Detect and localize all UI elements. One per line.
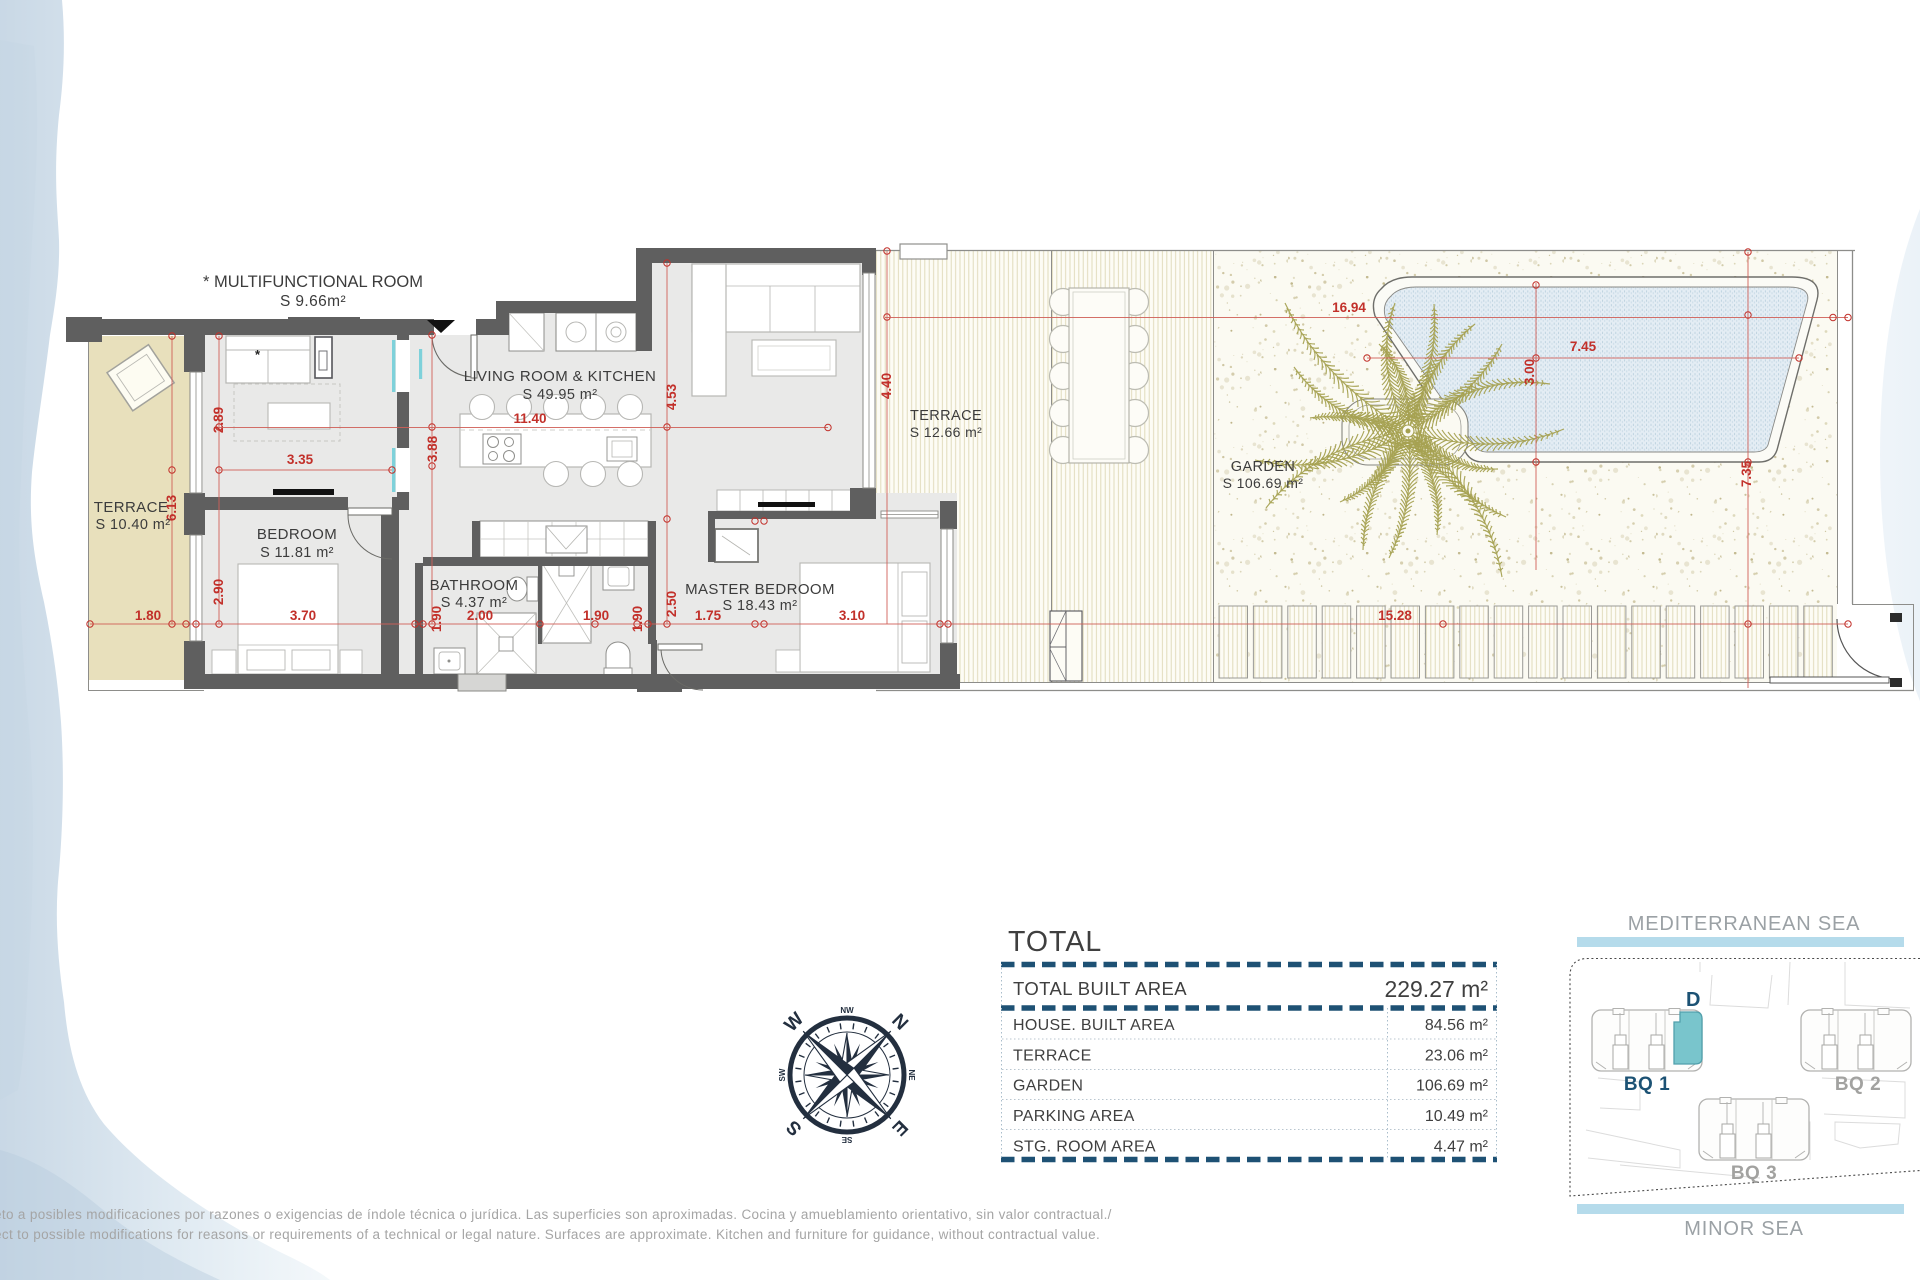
svg-text:SE: SE (841, 1135, 852, 1144)
svg-text:2.50: 2.50 (664, 591, 679, 617)
svg-text:GARDEN: GARDEN (1231, 459, 1295, 475)
svg-text:MINOR SEA: MINOR SEA (1684, 1218, 1803, 1240)
svg-text:16.94: 16.94 (1332, 300, 1366, 315)
svg-text:4.53: 4.53 (664, 383, 679, 410)
svg-text:229.27 m²: 229.27 m² (1384, 976, 1488, 1002)
svg-text:SW: SW (778, 1068, 787, 1081)
svg-text:TOTAL: TOTAL (1008, 926, 1102, 958)
svg-text:TERRACE: TERRACE (910, 408, 982, 424)
svg-text:7.35: 7.35 (1739, 460, 1754, 487)
svg-text:TERRACE: TERRACE (94, 499, 168, 516)
svg-text:3.00: 3.00 (1522, 359, 1537, 385)
svg-text:3.10: 3.10 (839, 608, 865, 623)
svg-text:11.40: 11.40 (513, 411, 546, 426)
svg-text:S 11.81 m²: S 11.81 m² (260, 545, 334, 561)
svg-text:MEDITERRANEAN SEA: MEDITERRANEAN SEA (1628, 913, 1861, 935)
svg-text:S 106.69 m²: S 106.69 m² (1223, 475, 1304, 491)
svg-text:* MULTIFUNCTIONAL ROOM: * MULTIFUNCTIONAL ROOM (203, 273, 423, 291)
svg-text:BQ 2: BQ 2 (1835, 1074, 1881, 1095)
svg-text:BATHROOM: BATHROOM (430, 577, 519, 594)
svg-text:3.35: 3.35 (287, 452, 314, 467)
svg-text:4.40: 4.40 (879, 373, 894, 399)
svg-text:S 18.43 m²: S 18.43 m² (723, 598, 798, 614)
svg-text:1.80: 1.80 (135, 608, 161, 623)
svg-text:S 12.66 m²: S 12.66 m² (910, 424, 982, 440)
svg-text:7.45: 7.45 (1570, 339, 1597, 354)
svg-text:NE: NE (907, 1069, 916, 1081)
svg-text:TOTAL BUILT AREA: TOTAL BUILT AREA (1013, 978, 1187, 999)
svg-text:NW: NW (840, 1006, 854, 1015)
svg-text:S 49.95 m²: S 49.95 m² (523, 387, 598, 403)
svg-text:S 9.66m²: S 9.66m² (280, 293, 346, 310)
svg-text:10.49 m²: 10.49 m² (1425, 1108, 1489, 1125)
svg-text:15.28: 15.28 (1378, 608, 1412, 623)
svg-text:LIVING ROOM & KITCHEN: LIVING ROOM & KITCHEN (464, 368, 657, 385)
svg-text:1.75: 1.75 (695, 608, 722, 623)
svg-text:3.70: 3.70 (290, 608, 316, 623)
svg-text:STG. ROOM AREA: STG. ROOM AREA (1013, 1139, 1156, 1156)
svg-text:GARDEN: GARDEN (1013, 1078, 1083, 1095)
svg-text:eto a posibles modificaciones: eto a posibles modificaciones por razone… (0, 1207, 1112, 1222)
svg-text:2.89: 2.89 (211, 407, 226, 433)
svg-text:1.90: 1.90 (583, 608, 609, 623)
svg-text:BEDROOM: BEDROOM (257, 526, 337, 543)
svg-text:BQ 3: BQ 3 (1731, 1163, 1777, 1184)
svg-text:TERRACE: TERRACE (1013, 1048, 1092, 1065)
svg-text:1.90: 1.90 (630, 606, 645, 632)
svg-text:23.06 m²: 23.06 m² (1425, 1048, 1489, 1065)
svg-text:S 10.40 m²: S 10.40 m² (96, 517, 171, 533)
svg-text:MASTER BEDROOM: MASTER BEDROOM (685, 581, 835, 598)
svg-text:S 4.37 m²: S 4.37 m² (441, 595, 507, 611)
svg-text:D: D (1686, 989, 1700, 1011)
svg-text:ect to possible modifications: ect to possible modifications for reason… (0, 1227, 1100, 1242)
svg-text:84.56 m²: 84.56 m² (1425, 1017, 1489, 1034)
svg-text:4.47 m²: 4.47 m² (1434, 1139, 1489, 1156)
svg-text:BQ 1: BQ 1 (1624, 1074, 1670, 1095)
svg-text:2.90: 2.90 (211, 579, 226, 605)
svg-text:PARKING AREA: PARKING AREA (1013, 1108, 1135, 1125)
svg-text:106.69 m²: 106.69 m² (1416, 1078, 1489, 1095)
svg-text:HOUSE. BUILT AREA: HOUSE. BUILT AREA (1013, 1017, 1175, 1034)
svg-text:3.88: 3.88 (425, 435, 440, 462)
